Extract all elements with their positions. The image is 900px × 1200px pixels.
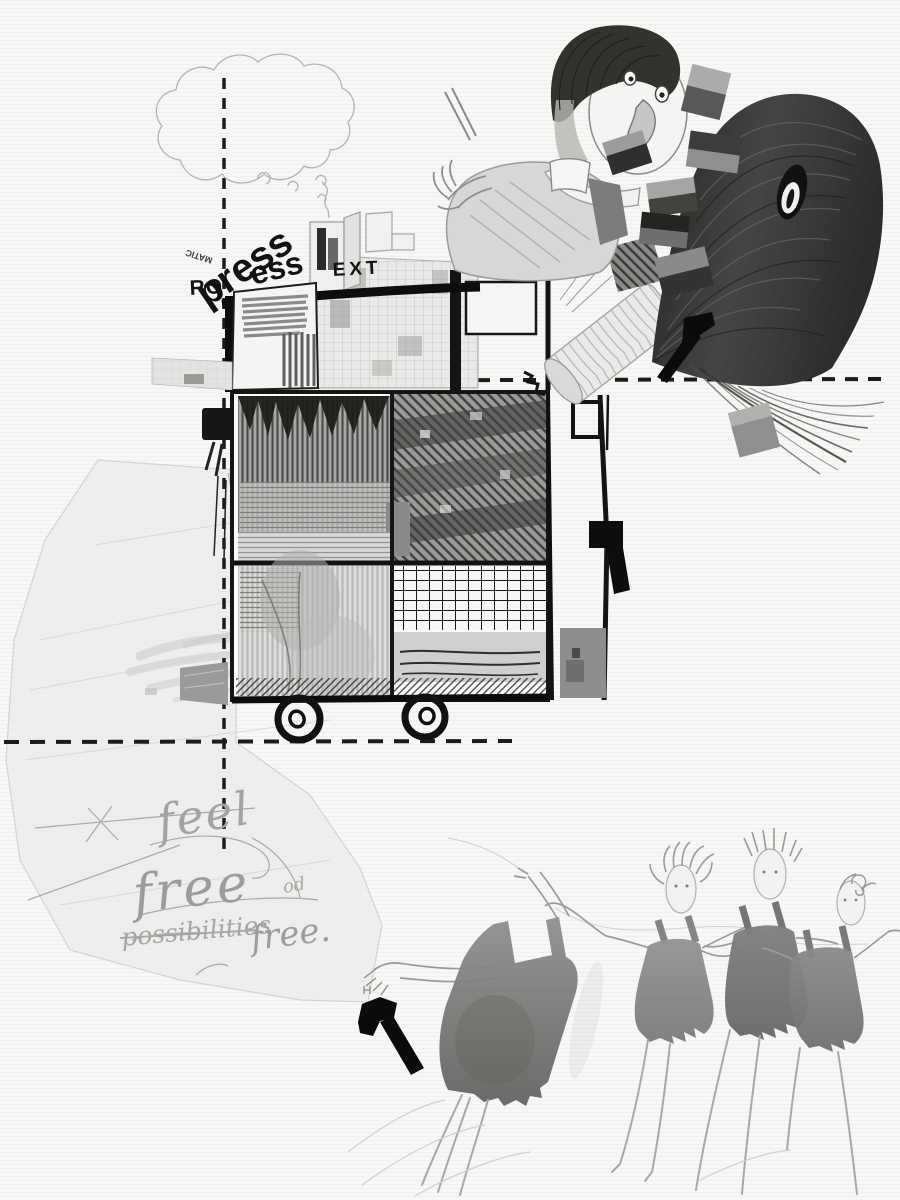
chip (646, 177, 698, 217)
chip (639, 212, 690, 249)
dancer-4-legs (787, 1048, 857, 1194)
panel-upper-left (238, 396, 390, 532)
chip (728, 402, 780, 457)
handwriting-od: od (281, 873, 307, 898)
panel-grid (394, 566, 546, 630)
artwork-canvas: feel free od possibilities free. (0, 0, 900, 1200)
arrow-up-left-icon (358, 997, 424, 1075)
dancer-2-dress (635, 939, 714, 1044)
dancer-2-arms (545, 903, 748, 948)
dancer-1-legs (422, 1095, 488, 1195)
machine-cart (180, 392, 630, 740)
pencil-smudges (445, 88, 476, 140)
panel-bottom-right (394, 632, 546, 682)
panel-lower-left (238, 550, 390, 696)
chip (681, 64, 731, 120)
wheel-left (278, 698, 320, 740)
boy-cuff (550, 159, 590, 193)
side-apparatus (560, 395, 630, 700)
dancers-group (348, 828, 900, 1196)
dancer-2-head (666, 865, 696, 913)
lever-handle (606, 542, 630, 594)
smoke-cloud (156, 54, 354, 218)
dancer-3-head (754, 849, 786, 899)
collage-word-ext: EXT (332, 257, 382, 281)
photo-chip (560, 628, 606, 698)
dancer-2 (545, 842, 748, 1181)
chip (686, 131, 743, 174)
dancer-4-dress (790, 947, 864, 1052)
ground-strokes (348, 1100, 790, 1196)
chimney-box (310, 212, 360, 294)
dancer-2-legs (612, 1040, 670, 1181)
left-black-blob (202, 408, 232, 440)
bottom-black-bar (232, 697, 548, 700)
collage-word-matic: MATIC (184, 247, 214, 265)
panel-upper-right (394, 394, 546, 562)
small-roof-box (366, 212, 414, 252)
dancer-3-legs (696, 1030, 760, 1194)
wheel-right (405, 697, 445, 737)
